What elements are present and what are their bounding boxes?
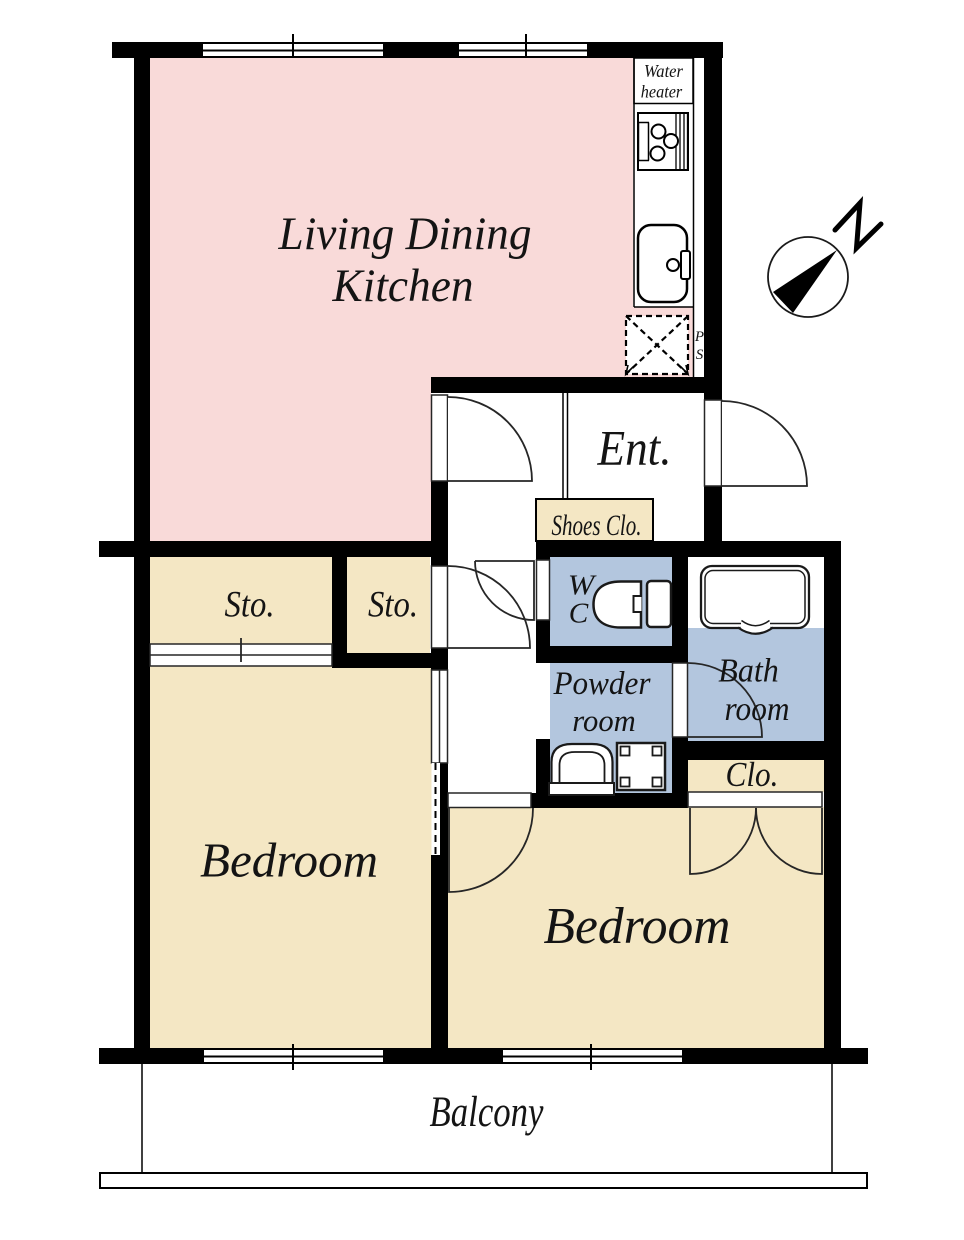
svg-text:Kitchen: Kitchen bbox=[332, 260, 474, 312]
svg-text:Balcony: Balcony bbox=[430, 1089, 545, 1136]
svg-text:Sto.: Sto. bbox=[368, 585, 418, 626]
svg-text:Powder: Powder bbox=[553, 666, 651, 702]
svg-text:room: room bbox=[725, 691, 790, 728]
svg-text:heater: heater bbox=[641, 82, 683, 102]
svg-text:Shoes Clo.: Shoes Clo. bbox=[552, 509, 642, 542]
svg-text:Clo.: Clo. bbox=[726, 755, 779, 794]
svg-text:Water: Water bbox=[644, 61, 683, 81]
svg-text:Ent.: Ent. bbox=[597, 420, 672, 476]
svg-text:Sto.: Sto. bbox=[225, 585, 275, 626]
svg-text:room: room bbox=[572, 703, 636, 738]
svg-text:Bath: Bath bbox=[718, 653, 779, 690]
svg-text:Living Dining: Living Dining bbox=[278, 208, 532, 260]
svg-text:Bedroom: Bedroom bbox=[200, 833, 378, 888]
svg-text:S: S bbox=[696, 347, 704, 363]
svg-text:C: C bbox=[569, 598, 589, 630]
svg-text:P: P bbox=[694, 329, 704, 345]
svg-text:Bedroom: Bedroom bbox=[544, 898, 731, 955]
